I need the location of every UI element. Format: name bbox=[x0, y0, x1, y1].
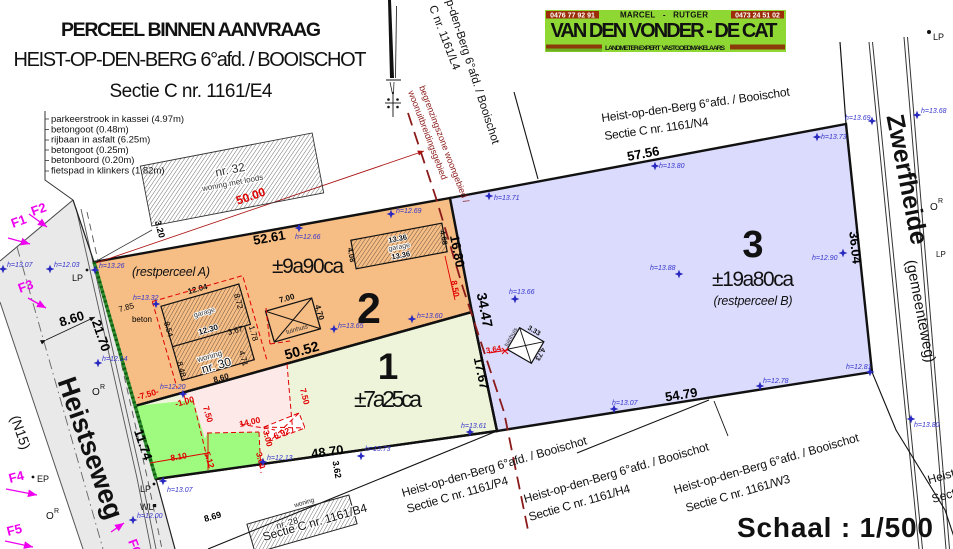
svg-text:LANDMETER-EXPERT VASTGOEDMAK: LANDMETER-EXPERT VASTGOEDMAKELAARS bbox=[605, 45, 725, 52]
svg-text:HEIST-OP-DEN-BERG 6°afd. / BOO: HEIST-OP-DEN-BERG 6°afd. / BOOISCHOT bbox=[14, 49, 367, 71]
svg-text:(restperceel B): (restperceel B) bbox=[714, 294, 793, 308]
svg-text:O: O bbox=[46, 511, 54, 522]
svg-text:R: R bbox=[100, 384, 105, 391]
svg-text:(restperceel A): (restperceel A) bbox=[132, 265, 210, 279]
svg-text:R: R bbox=[938, 198, 943, 205]
svg-text:h=12.78: h=12.78 bbox=[763, 378, 789, 385]
svg-text:Schaal : 1/500: Schaal : 1/500 bbox=[737, 512, 933, 543]
svg-text:±7a25ca: ±7a25ca bbox=[354, 386, 422, 412]
svg-text:h=13.80: h=13.80 bbox=[914, 422, 940, 429]
svg-text:1: 1 bbox=[378, 346, 399, 387]
svg-text:h=12.00: h=12.00 bbox=[137, 513, 163, 520]
svg-text:h=12.20: h=12.20 bbox=[160, 384, 186, 391]
svg-text:O: O bbox=[92, 387, 100, 398]
svg-text:h=13.07: h=13.07 bbox=[167, 487, 194, 494]
svg-text:±19a80ca: ±19a80ca bbox=[712, 268, 794, 291]
svg-text:EP: EP bbox=[37, 474, 49, 484]
svg-text:h=13.07: h=13.07 bbox=[612, 400, 639, 407]
svg-text:h=13.71: h=13.71 bbox=[494, 195, 520, 202]
svg-text:h=12.14: h=12.14 bbox=[102, 356, 128, 363]
svg-text:h=13.60: h=13.60 bbox=[417, 313, 443, 320]
svg-text:h=13.32: h=13.32 bbox=[133, 295, 159, 302]
svg-text:MARCEL - RUTGER: MARCEL - RUTGER bbox=[620, 11, 708, 20]
svg-text:WL: WL bbox=[140, 502, 154, 512]
svg-text:h=12.66: h=12.66 bbox=[295, 234, 321, 241]
svg-text:h=13.61: h=13.61 bbox=[461, 423, 487, 430]
svg-text:h=13.80: h=13.80 bbox=[659, 163, 685, 170]
svg-text:h=13.73: h=13.73 bbox=[821, 134, 847, 141]
svg-text:h=12.69: h=12.69 bbox=[396, 208, 422, 215]
svg-text:VAN DEN VONDER - DE CAT: VAN DEN VONDER - DE CAT bbox=[551, 20, 778, 42]
svg-text:LP: LP bbox=[140, 484, 151, 494]
svg-text:h=12.03: h=12.03 bbox=[54, 262, 80, 269]
svg-text:h=13.66: h=13.66 bbox=[509, 289, 535, 296]
svg-text:h=13.65: h=13.65 bbox=[338, 323, 364, 330]
svg-text:fietspad in klinkers (1.82m): fietspad in klinkers (1.82m) bbox=[51, 166, 165, 177]
svg-text:0476 77 92 91: 0476 77 92 91 bbox=[550, 13, 595, 20]
svg-text:h=13.26: h=13.26 bbox=[99, 263, 125, 270]
svg-text:LP: LP bbox=[933, 32, 944, 42]
svg-text:h=12.90: h=12.90 bbox=[812, 255, 838, 262]
svg-text:LP: LP bbox=[72, 273, 83, 283]
svg-text:h=13.68: h=13.68 bbox=[921, 108, 947, 115]
svg-text:±9a90ca: ±9a90ca bbox=[272, 255, 344, 278]
svg-text:h=12.13: h=12.13 bbox=[267, 455, 293, 462]
svg-text:O: O bbox=[930, 202, 938, 213]
svg-text:h=13.88: h=13.88 bbox=[650, 265, 676, 272]
svg-text:h=13.69: h=13.69 bbox=[845, 115, 871, 122]
svg-text:PERCEEL BINNEN AANVRAAG: PERCEEL BINNEN AANVRAAG bbox=[61, 19, 321, 41]
svg-text:h=12.81: h=12.81 bbox=[846, 364, 872, 371]
svg-text:3: 3 bbox=[742, 224, 763, 266]
svg-text:LP: LP bbox=[936, 250, 946, 259]
svg-text:h=13.07: h=13.07 bbox=[7, 262, 34, 269]
svg-text:Sectie C nr. 1161/E4: Sectie C nr. 1161/E4 bbox=[110, 81, 273, 102]
svg-text:beton: beton bbox=[132, 315, 152, 324]
svg-text:R: R bbox=[54, 508, 59, 515]
svg-text:0473 24 51 02: 0473 24 51 02 bbox=[735, 13, 780, 20]
svg-text:h=13.73: h=13.73 bbox=[365, 446, 391, 453]
